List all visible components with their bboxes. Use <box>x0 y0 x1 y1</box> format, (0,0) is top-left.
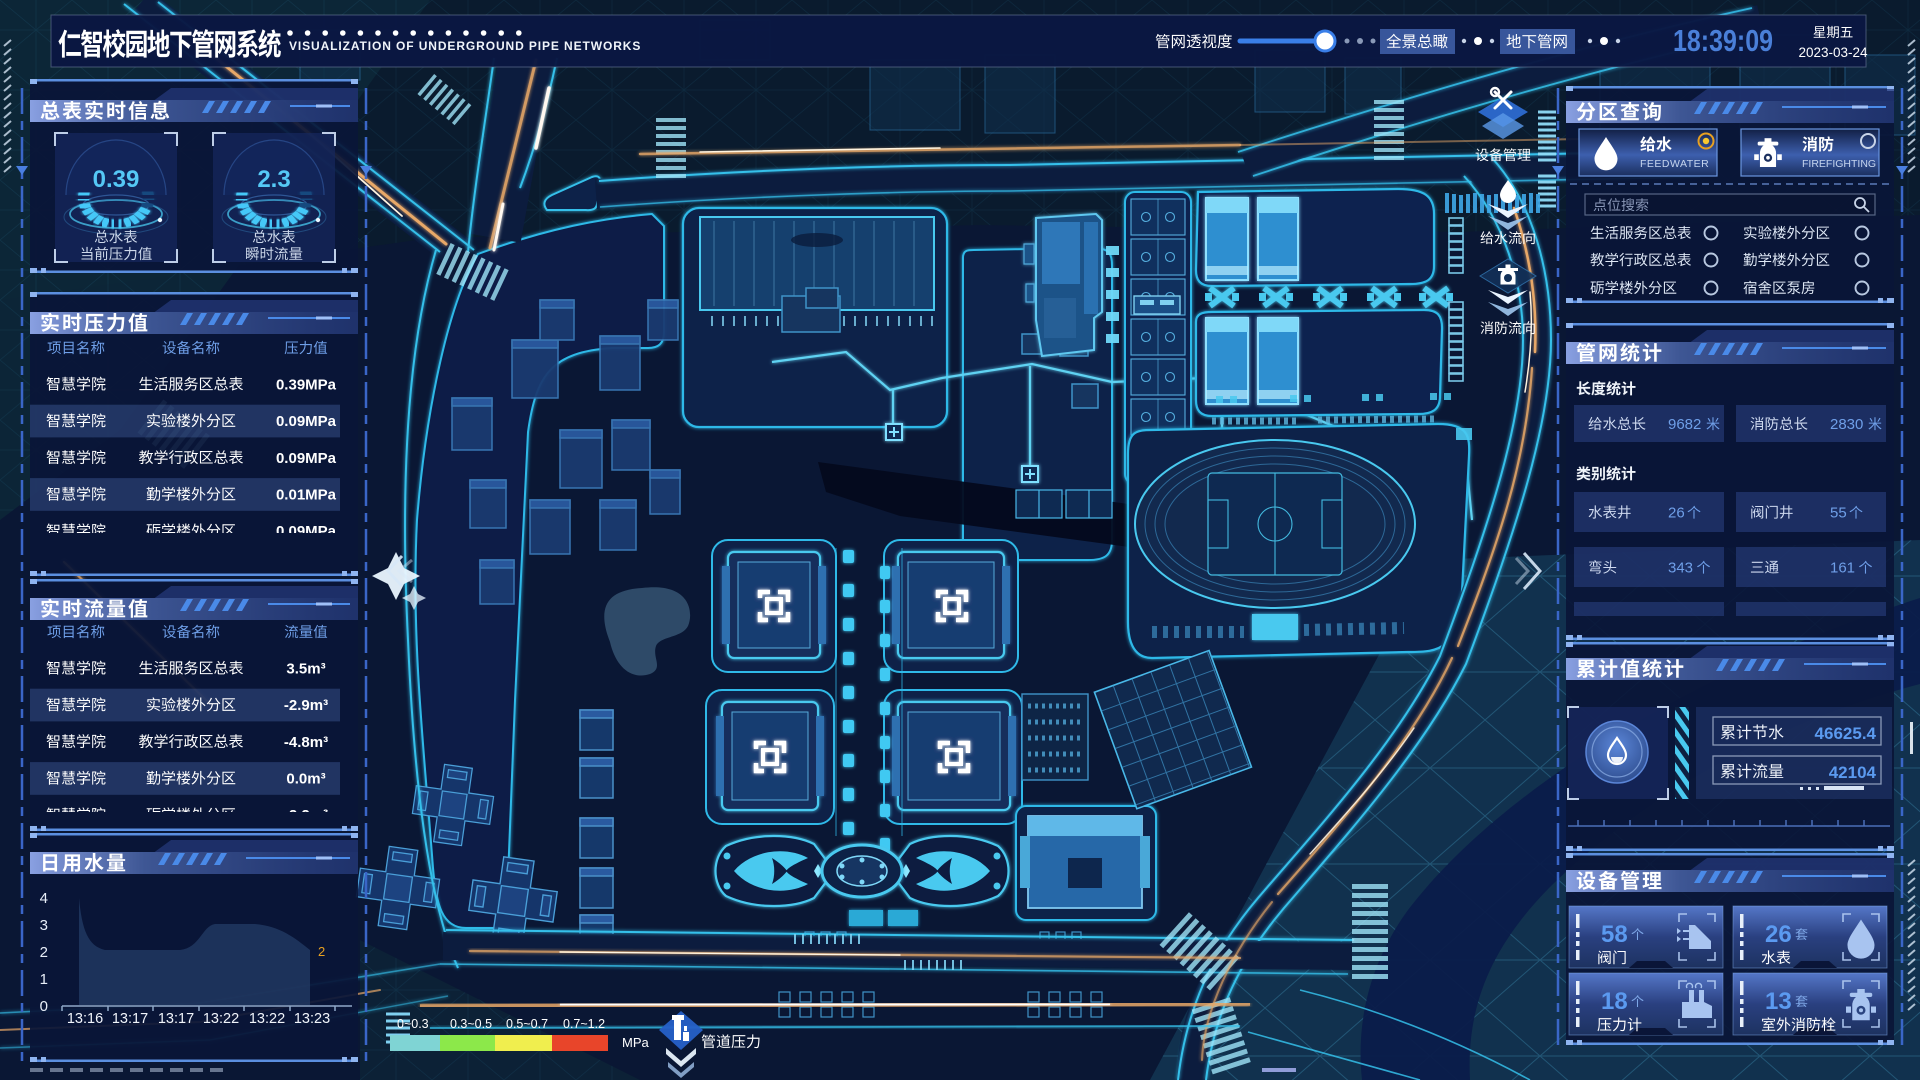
svg-text:2: 2 <box>40 944 48 961</box>
svg-text:0: 0 <box>40 998 48 1015</box>
svg-text:3: 3 <box>40 917 48 934</box>
svg-text:58: 58 <box>1601 921 1628 948</box>
svg-text:FEEDWATER: FEEDWATER <box>1640 158 1709 170</box>
svg-text:0.7~1.2: 0.7~1.2 <box>563 1017 605 1031</box>
svg-text:0.5~0.7: 0.5~0.7 <box>506 1017 548 1031</box>
svg-text:0~0.3: 0~0.3 <box>397 1017 429 1031</box>
svg-text:0.39: 0.39 <box>93 166 140 193</box>
svg-text:55: 55 <box>1830 505 1847 522</box>
svg-text:0.09MPa: 0.09MPa <box>276 450 337 467</box>
svg-text:18:39:09: 18:39:09 <box>1673 23 1773 58</box>
svg-text:26: 26 <box>1765 921 1792 948</box>
svg-text:3.5m³: 3.5m³ <box>286 660 325 677</box>
svg-text:13:17: 13:17 <box>158 1011 194 1027</box>
svg-text:0.0m³: 0.0m³ <box>286 770 325 787</box>
svg-text:0.3~0.5: 0.3~0.5 <box>450 1017 492 1031</box>
svg-text:13:22: 13:22 <box>249 1011 285 1027</box>
svg-text:0.39MPa: 0.39MPa <box>276 376 337 393</box>
svg-text:13:22: 13:22 <box>203 1011 239 1027</box>
svg-text:18: 18 <box>1601 988 1628 1015</box>
svg-text:9682: 9682 <box>1668 416 1701 433</box>
svg-text:42104: 42104 <box>1829 763 1877 782</box>
svg-text:2023-03-24: 2023-03-24 <box>1798 45 1868 60</box>
svg-text:46625.4: 46625.4 <box>1815 724 1877 743</box>
svg-text:0.01MPa: 0.01MPa <box>276 486 337 503</box>
svg-text:-2.9m³: -2.9m³ <box>284 697 328 714</box>
svg-text:161: 161 <box>1830 560 1855 577</box>
svg-text:VISUALIZATION OF UNDERGROUND: VISUALIZATION OF UNDERGROUND PIPE NETWOR… <box>289 39 641 53</box>
svg-text:13:23: 13:23 <box>294 1011 330 1027</box>
svg-text:4: 4 <box>40 890 48 907</box>
svg-text:MPa: MPa <box>622 1035 650 1050</box>
svg-text:-4.8m³: -4.8m³ <box>284 734 328 751</box>
svg-text:13:16: 13:16 <box>67 1011 103 1027</box>
svg-text:2: 2 <box>318 944 325 959</box>
svg-text:13: 13 <box>1765 988 1792 1015</box>
svg-text:2.3: 2.3 <box>257 166 290 193</box>
svg-text:1: 1 <box>40 971 48 988</box>
svg-text:13:17: 13:17 <box>112 1011 148 1027</box>
svg-text:343: 343 <box>1668 560 1693 577</box>
svg-text:26: 26 <box>1668 505 1685 522</box>
svg-text:FIREFIGHTING: FIREFIGHTING <box>1802 158 1876 170</box>
svg-text:2830: 2830 <box>1830 416 1863 433</box>
svg-text:0.09MPa: 0.09MPa <box>276 413 337 430</box>
